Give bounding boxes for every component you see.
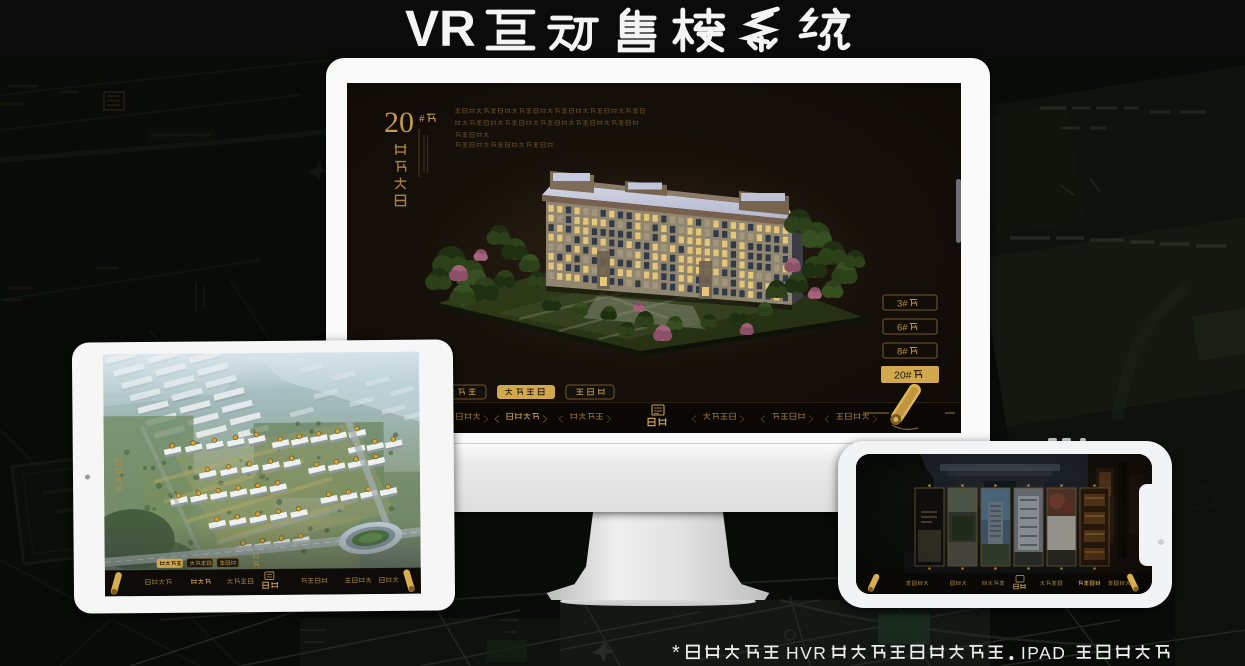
svg-text:HVR: HVR [786, 643, 827, 663]
svg-text:20#: 20# [894, 370, 912, 382]
svg-text:20: 20 [384, 106, 414, 139]
svg-text:8#: 8# [897, 347, 908, 358]
svg-text:VR: VR [405, 0, 476, 57]
svg-text:*: * [672, 642, 680, 664]
svg-text:IPAD: IPAD [1021, 643, 1067, 663]
svg-text:3#: 3# [897, 299, 908, 310]
svg-text:#: # [419, 113, 425, 125]
svg-text:6#: 6# [897, 323, 908, 334]
